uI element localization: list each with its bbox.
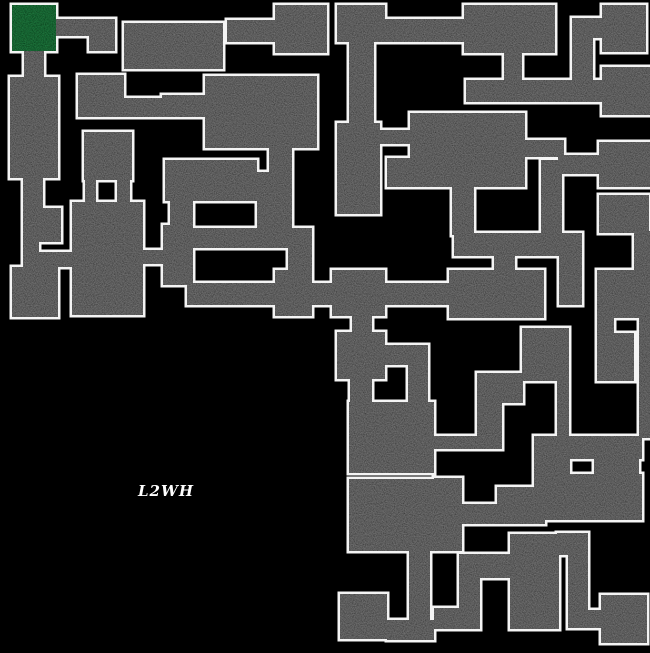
room — [23, 240, 39, 268]
room — [510, 534, 559, 629]
room — [38, 252, 76, 267]
room — [337, 5, 385, 42]
room — [557, 381, 569, 438]
room — [352, 314, 372, 334]
room — [275, 5, 327, 53]
room — [12, 267, 58, 317]
room — [525, 140, 564, 157]
room — [349, 479, 434, 551]
room — [639, 316, 650, 335]
room — [349, 402, 434, 473]
room — [409, 551, 430, 623]
room — [385, 345, 428, 365]
room — [10, 77, 58, 178]
room — [72, 202, 143, 315]
room — [340, 594, 387, 639]
room — [434, 478, 462, 551]
room — [494, 254, 515, 272]
room — [599, 142, 650, 187]
room — [337, 332, 385, 379]
room — [639, 333, 650, 438]
room — [541, 160, 562, 235]
room — [162, 95, 207, 117]
room — [337, 123, 380, 214]
room — [557, 533, 588, 555]
room — [572, 18, 593, 84]
room — [558, 155, 599, 174]
dungeon-map: L2WH — [0, 0, 650, 653]
room — [497, 487, 545, 524]
room — [275, 270, 312, 316]
room — [597, 316, 614, 335]
room — [124, 23, 223, 69]
room — [24, 49, 44, 79]
room — [434, 436, 497, 449]
room — [602, 5, 646, 52]
room — [163, 225, 193, 285]
room — [205, 76, 317, 148]
room — [269, 148, 292, 175]
room — [459, 578, 480, 629]
room — [23, 208, 61, 242]
map-canvas — [0, 0, 650, 653]
room — [568, 555, 588, 612]
room — [464, 5, 555, 53]
room — [462, 504, 497, 524]
room — [350, 377, 372, 404]
room — [459, 554, 510, 578]
room — [170, 201, 193, 227]
room — [602, 67, 650, 115]
room — [449, 270, 544, 318]
room — [594, 459, 639, 475]
room — [250, 172, 292, 194]
room — [634, 231, 650, 272]
room — [601, 595, 647, 643]
room — [165, 160, 257, 201]
map-label: L2WH — [138, 482, 194, 500]
room — [545, 474, 642, 520]
room — [385, 19, 466, 42]
room — [410, 113, 525, 187]
room — [387, 158, 412, 187]
room — [257, 192, 292, 230]
room — [534, 436, 642, 459]
room — [380, 130, 412, 144]
room — [187, 283, 450, 305]
room — [84, 132, 132, 180]
room — [288, 246, 312, 272]
room — [599, 195, 649, 233]
room — [78, 75, 124, 117]
room — [349, 40, 374, 126]
room — [434, 608, 459, 629]
room — [408, 363, 428, 405]
room — [522, 328, 569, 381]
room — [568, 610, 601, 628]
room — [124, 98, 164, 117]
room — [89, 33, 115, 51]
start-room — [12, 5, 56, 51]
room — [597, 270, 650, 318]
room — [597, 333, 634, 381]
room — [504, 51, 522, 83]
room — [227, 20, 275, 42]
room — [332, 270, 385, 316]
room — [559, 254, 582, 305]
room — [193, 228, 312, 248]
room — [454, 233, 582, 256]
room — [23, 176, 43, 210]
room — [477, 373, 523, 403]
room — [452, 185, 474, 235]
